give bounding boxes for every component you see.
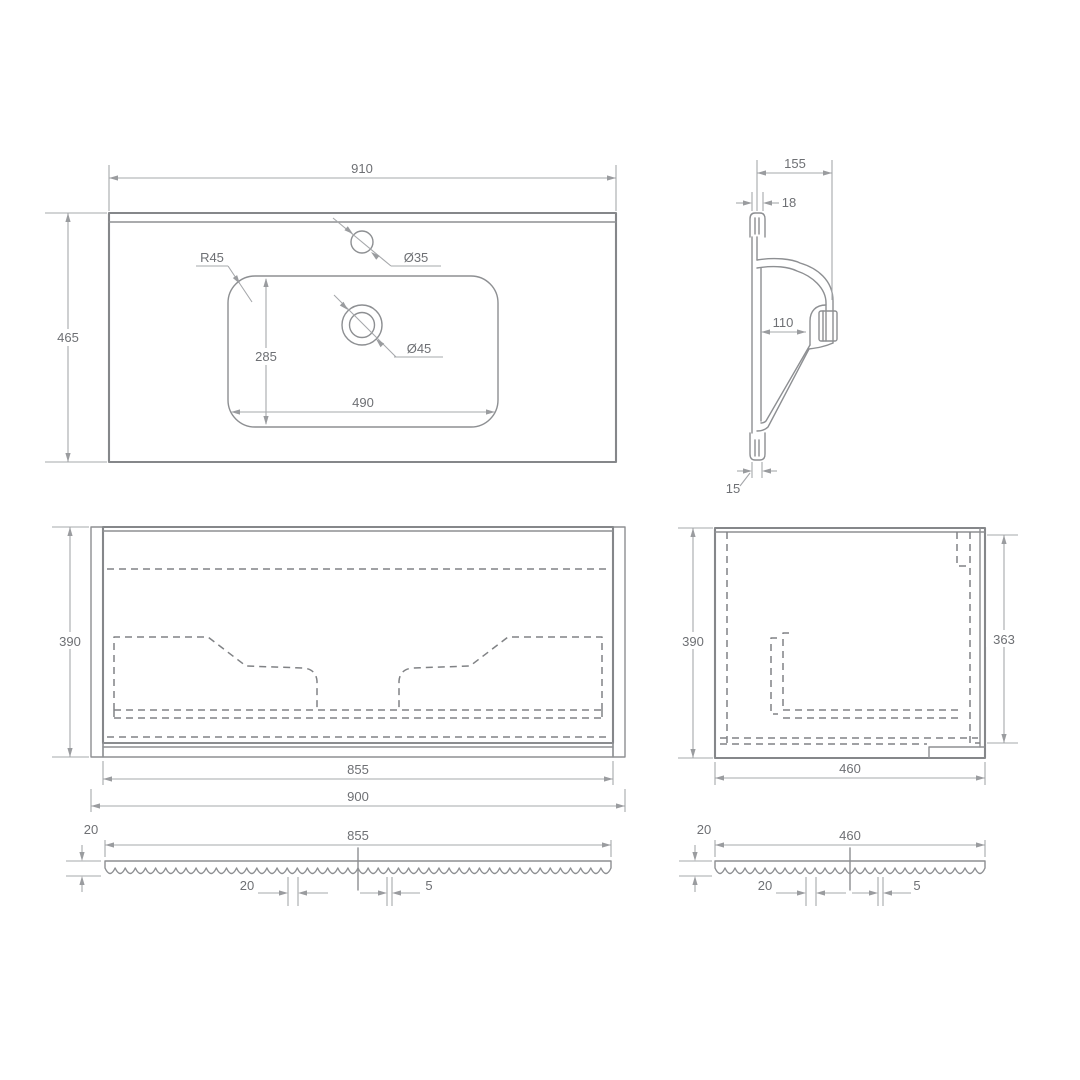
dim-side-height: 390 [682,634,704,649]
dim-front-strip-thickness: 20 [84,822,98,837]
drain-hole-inner [350,313,375,338]
dim-wall-thickness: 18 [782,195,796,210]
dim-inner-depth: 110 [773,315,794,330]
dim-top-depth: 465 [57,330,79,345]
section-top-tab [750,213,765,237]
side-hidden-top-bracket [957,532,968,566]
dim-side-depth: 460 [839,761,861,776]
section-edge-detail [819,311,837,341]
dim-side-strip-gap: 5 [913,878,920,893]
dim-drain-hole: Ø45 [407,341,432,356]
side-hidden-back-line [970,532,980,743]
dim-side-strip-length: 460 [839,828,861,843]
dim-side-strip-pitch: 20 [758,878,772,893]
side-bottom-notch [929,747,985,758]
dim-front-inner-width: 855 [347,762,369,777]
front-right-cutout [399,637,602,710]
section-view: 155 18 110 15 [726,156,837,496]
side-box-outline [715,528,985,758]
front-right-panel [613,527,625,757]
front-left-panel [91,527,103,757]
front-bottom-rail [103,743,613,757]
dim-top-width: 910 [351,161,373,176]
dim-front-total-width: 900 [347,789,369,804]
dim-corner-radius: R45 [200,250,224,265]
side-pipe-cutout-outer [771,638,778,714]
dim-front-strip-pitch: 20 [240,878,254,893]
front-strip: 855 20 20 5 [66,822,611,906]
side-pipe-cutout-inner [783,633,789,708]
dim-front-strip-gap: 5 [425,878,432,893]
dim-basin-width: 490 [352,395,374,410]
front-view: 390 855 900 [52,527,625,812]
front-left-cutout [114,637,317,710]
dim-side-inner-height: 363 [993,632,1015,647]
top-view: 910 465 R45 Ø35 Ø45 285 [45,161,616,462]
dim-tap-hole: Ø35 [404,250,429,265]
technical-drawing-washbasin-cabinet: 910 465 R45 Ø35 Ø45 285 [0,0,1080,1080]
dim-basin-depth: 285 [255,349,277,364]
dim-section-depth: 155 [784,156,806,171]
dim-front-strip-length: 855 [347,828,369,843]
dim-side-strip-thickness: 20 [697,822,711,837]
dim-front-height: 390 [59,634,81,649]
side-view: 390 363 460 [675,528,1022,785]
section-bottom-tab [750,433,765,460]
dim-bottom-lip: 15 [726,481,740,496]
side-strip: 460 20 20 5 [679,822,985,906]
drain-hole-outer [342,305,382,345]
